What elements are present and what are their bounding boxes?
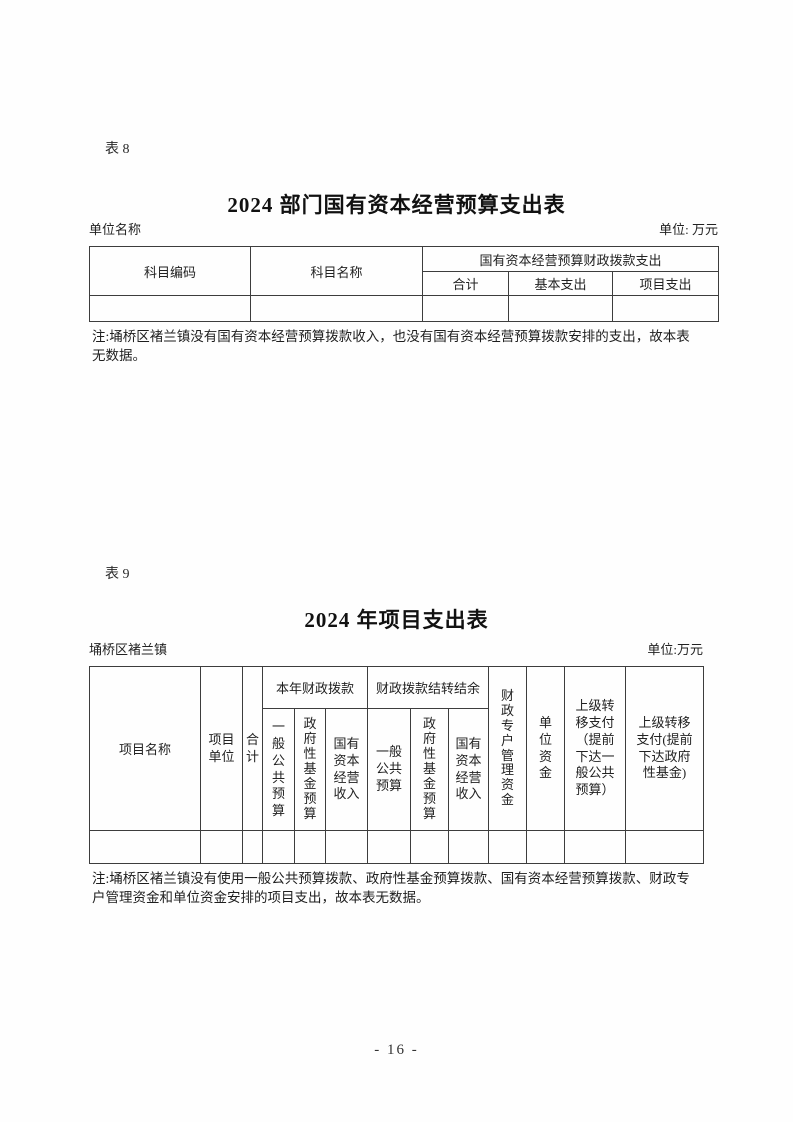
- table8-title: 2024 部门国有资本经营预算支出表: [0, 189, 793, 219]
- table9-data-row: [90, 831, 704, 864]
- header-current-gov-fund-budget: 政 府 性 基 金 预 算: [295, 709, 326, 831]
- table9-note: 注:埇桥区褚兰镇没有使用一般公共预算拨款、政府性基金预算拨款、国有资本经营预算拨…: [92, 869, 724, 907]
- table9-cell-project-name: [90, 831, 201, 864]
- header-subject-name: 科目名称: [251, 247, 423, 296]
- header-unit-funds: 单 位 资 金: [527, 667, 565, 831]
- table8-currency-unit-label: 单位: 万元: [659, 219, 718, 238]
- header-group-current-year-allocation: 本年财政拨款: [263, 667, 368, 709]
- table9-cell-total: [243, 831, 263, 864]
- table9-org-name-label: 埇桥区褚兰镇: [89, 639, 167, 658]
- header-carryover-soc-operating-income: 国有 资本 经营 收入: [449, 709, 489, 831]
- table8-header: 科目编码 科目名称 国有资本经营预算财政拨款支出 合计 基本支出 项目支出: [90, 247, 719, 296]
- header-group-soc-allocation-expenditure: 国有资本经营预算财政拨款支出: [423, 247, 719, 272]
- table8-unit-name-label: 单位名称: [89, 219, 141, 238]
- project-expenditure-table: 项目名称 项目 单位 合 计 本年财政拨款 财政拨款结转结余 财 政 专 户 管…: [89, 666, 704, 864]
- table9-cell-cur-soc: [326, 831, 368, 864]
- table9-header-row-groups: 项目名称 项目 单位 合 计 本年财政拨款 财政拨款结转结余 财 政 专 户 管…: [90, 667, 704, 709]
- header-total: 合 计: [243, 667, 263, 831]
- table8-meta: 单位名称 单位: 万元: [89, 219, 718, 238]
- table8-note: 注:埇桥区褚兰镇没有国有资本经营预算拨款收入，也没有国有资本经营预算拨款安排的支…: [92, 327, 724, 365]
- header-transfer-gov-fund: 上级转移 支付(提前 下达政府 性基金): [626, 667, 704, 831]
- table9-header: 项目名称 项目 单位 合 计 本年财政拨款 财政拨款结转结余 财 政 专 户 管…: [90, 667, 704, 831]
- table9-meta: 埇桥区褚兰镇 单位:万元: [89, 639, 703, 658]
- header-current-soc-operating-income: 国有 资本 经营 收入: [326, 709, 368, 831]
- document-page: 表 8 2024 部门国有资本经营预算支出表 单位名称 单位: 万元 科目编码 …: [0, 0, 793, 1122]
- table9-cell-project-unit: [201, 831, 243, 864]
- header-fiscal-special-account-funds: 财 政 专 户 管 理 资 金: [489, 667, 527, 831]
- table9-label: 表 9: [105, 563, 130, 583]
- table9-cell-cur-general: [263, 831, 295, 864]
- header-carryover-gov-fund-budget: 政 府 性 基 金 预 算: [411, 709, 449, 831]
- table9-cell-co-soc: [449, 831, 489, 864]
- table9-body: [90, 831, 704, 864]
- header-project-expenditure: 项目支出: [613, 272, 719, 296]
- table9-cell-transfer-fund: [626, 831, 704, 864]
- page-number: - 16 -: [0, 1042, 793, 1059]
- soc-budget-expenditure-table: 科目编码 科目名称 国有资本经营预算财政拨款支出 合计 基本支出 项目支出: [89, 246, 719, 322]
- table8-label: 表 8: [105, 138, 130, 158]
- header-subject-code: 科目编码: [90, 247, 251, 296]
- table9-cell-co-gov-fund: [411, 831, 449, 864]
- table9-cell-cur-gov-fund: [295, 831, 326, 864]
- table9-cell-special-account: [489, 831, 527, 864]
- header-carryover-general-public-budget: 一般 公共 预算: [368, 709, 411, 831]
- header-project-unit: 项目 单位: [201, 667, 243, 831]
- header-project-name: 项目名称: [90, 667, 201, 831]
- header-group-allocation-carryover: 财政拨款结转结余: [368, 667, 489, 709]
- table8-cell-total: [423, 296, 509, 322]
- table9-cell-co-general: [368, 831, 411, 864]
- header-transfer-general-budget: 上级转 移支付 （提前 下达一 般公共 预算）: [565, 667, 626, 831]
- header-basic-expenditure: 基本支出: [509, 272, 613, 296]
- header-current-general-public-budget: 一 般 公 共 预 算: [263, 709, 295, 831]
- table8-header-row-groups: 科目编码 科目名称 国有资本经营预算财政拨款支出: [90, 247, 719, 272]
- table9-title: 2024 年项目支出表: [0, 604, 793, 634]
- table8-cell-project-expenditure: [613, 296, 719, 322]
- table8-body: [90, 296, 719, 322]
- table8-cell-subject-name: [251, 296, 423, 322]
- table8-cell-basic-expenditure: [509, 296, 613, 322]
- table9-currency-unit-label: 单位:万元: [647, 639, 703, 658]
- table8-cell-subject-code: [90, 296, 251, 322]
- table8-data-row: [90, 296, 719, 322]
- table9-cell-unit-funds: [527, 831, 565, 864]
- header-total: 合计: [423, 272, 509, 296]
- table9-cell-transfer-general: [565, 831, 626, 864]
